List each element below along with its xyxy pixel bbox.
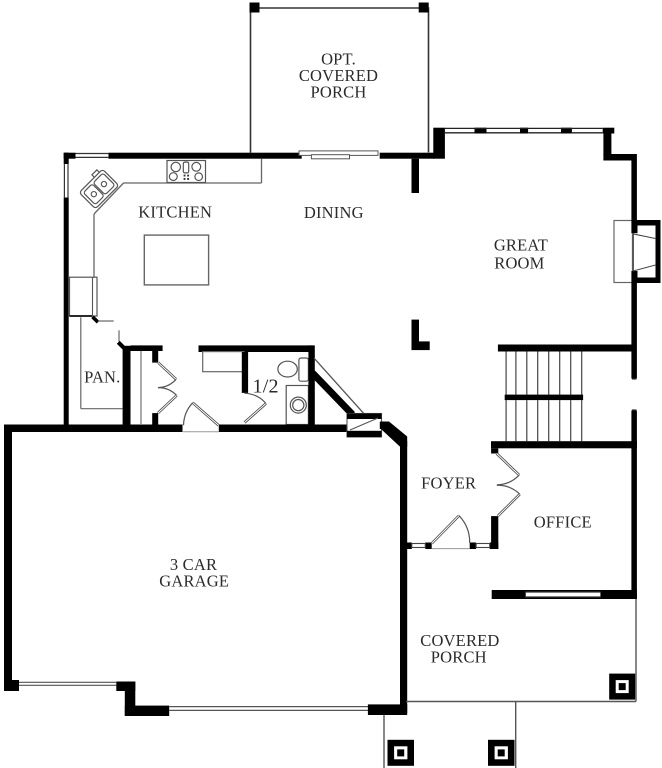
svg-text:GREAT: GREAT: [494, 236, 548, 255]
svg-text:PORCH: PORCH: [431, 648, 487, 667]
svg-text:OFFICE: OFFICE: [534, 513, 592, 532]
svg-text:KITCHEN: KITCHEN: [138, 203, 212, 222]
svg-text:GARAGE: GARAGE: [159, 571, 229, 590]
svg-text:FOYER: FOYER: [421, 474, 476, 493]
svg-text:ROOM: ROOM: [494, 253, 544, 272]
svg-text:1/2: 1/2: [253, 376, 279, 398]
svg-text:PAN.: PAN.: [84, 368, 120, 387]
svg-text:PORCH: PORCH: [310, 83, 366, 102]
svg-text:DINING: DINING: [304, 203, 364, 222]
